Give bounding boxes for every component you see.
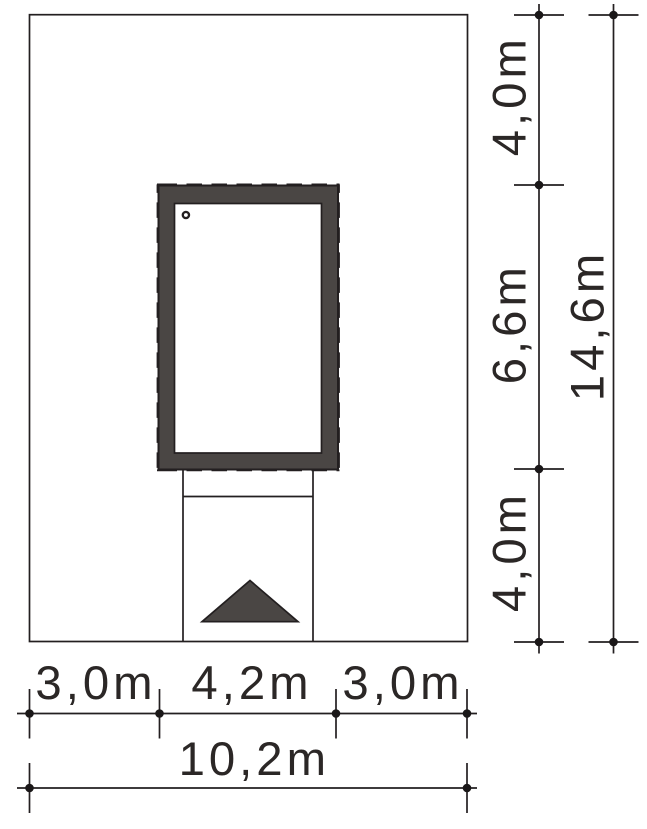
- svg-text:4,0m: 4,0m: [484, 35, 537, 156]
- svg-text:10,2m: 10,2m: [179, 733, 330, 786]
- svg-text:6,6m: 6,6m: [484, 263, 537, 384]
- svg-text:3,0m: 3,0m: [35, 657, 156, 710]
- svg-text:14,6m: 14,6m: [562, 250, 615, 401]
- svg-text:4,0m: 4,0m: [484, 491, 537, 612]
- svg-text:4,2m: 4,2m: [191, 657, 312, 710]
- svg-text:3,0m: 3,0m: [342, 657, 463, 710]
